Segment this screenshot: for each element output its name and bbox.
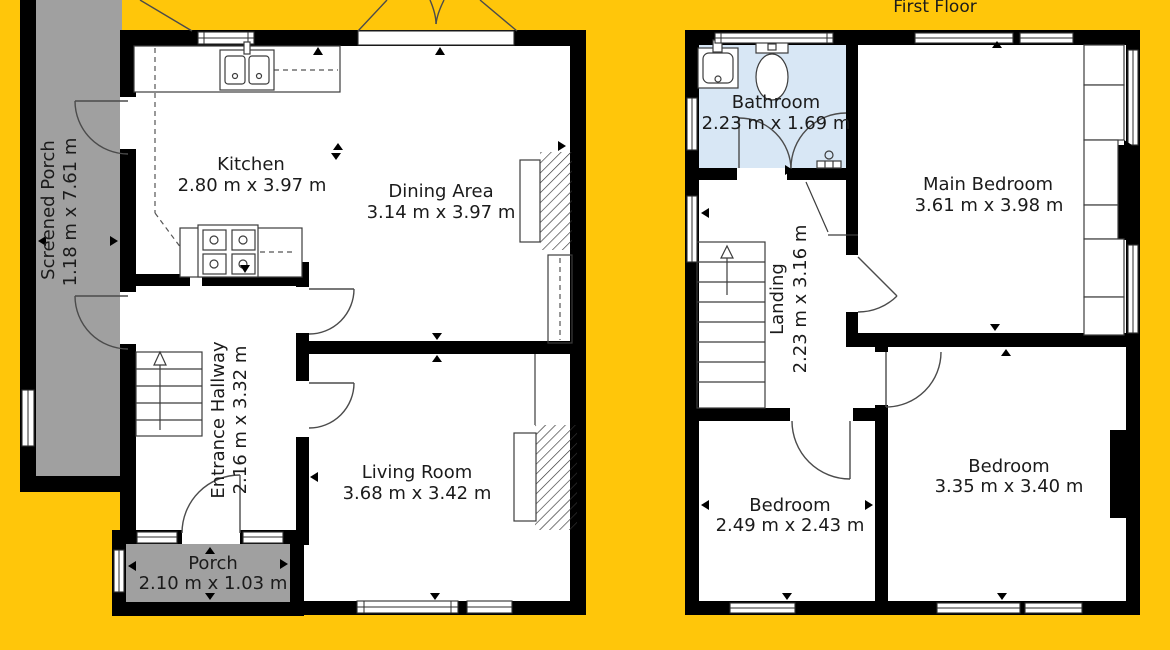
landing-window [687, 196, 697, 262]
bedroom-left-dimensions: 2.49 m x 2.43 m [716, 515, 865, 536]
living-room-windows [357, 601, 512, 613]
bedroom-left-window [730, 603, 795, 613]
main-bedroom-label: Main Bedroom [923, 174, 1053, 195]
entrance-hallway-label: Entrance Hallway [208, 341, 229, 499]
screened-porch-label: Screened Porch [38, 140, 59, 280]
landing-dimensions: 2.23 m x 3.16 m [790, 225, 811, 374]
entrance-hallway-dimensions: 2.16 m x 3.32 m [230, 346, 251, 495]
bedroom-right-dimensions: 3.35 m x 3.40 m [935, 476, 1084, 497]
bedroom-right-windows [937, 603, 1082, 613]
porch-window [114, 550, 124, 592]
dining-area-label: Dining Area [388, 181, 493, 202]
living-room-label: Living Room [362, 462, 473, 483]
main-bedroom-top-windows [915, 33, 1073, 43]
first-floor-title: First Floor [893, 0, 976, 17]
main-bedroom-dimensions: 3.61 m x 3.98 m [915, 195, 1064, 216]
dining-area-dimensions: 3.14 m x 3.97 m [367, 202, 516, 223]
main-bedroom-wardrobes [1084, 45, 1124, 335]
bathroom-dimensions: 2.23 m x 1.69 m [702, 113, 851, 134]
kitchen-dimensions: 2.80 m x 3.97 m [178, 175, 327, 196]
kitchen-hob [180, 225, 302, 277]
bedroom-chimney [1110, 430, 1140, 518]
landing-label: Landing [767, 263, 788, 335]
floorplan-canvas: Screened Porch 1.18 m x 7.61 m Kitchen 2… [0, 0, 1170, 650]
screened-porch-dimensions: 1.18 m x 7.61 m [60, 138, 81, 287]
bathroom-top-window [715, 33, 833, 43]
porch-dimensions: 2.10 m x 1.03 m [139, 573, 288, 594]
porch-label: Porch [188, 553, 238, 574]
ground-floor-interior [120, 30, 586, 615]
bedroom-right-label: Bedroom [968, 456, 1049, 477]
kitchen-label: Kitchen [217, 154, 285, 175]
bedroom-left-label: Bedroom [749, 495, 830, 516]
bathroom-label: Bathroom [732, 92, 820, 113]
first-floor-plan: First Floor [685, 0, 1140, 615]
bathroom-window [687, 98, 697, 150]
porch-side-window [22, 390, 34, 446]
living-room-dimensions: 3.68 m x 3.42 m [343, 483, 492, 504]
